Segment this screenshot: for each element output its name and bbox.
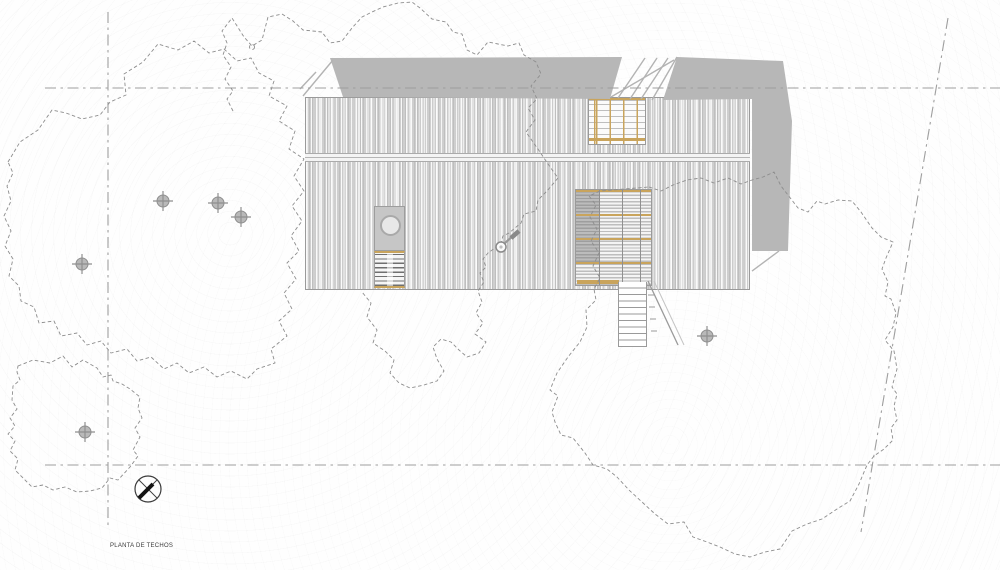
- tree-trunk-marker: [208, 193, 228, 213]
- canopy-knot: [250, 45, 255, 50]
- stair-rail: [648, 281, 684, 345]
- round-vent: [380, 215, 401, 236]
- exterior-stair: [618, 282, 647, 347]
- tree-canopy-outline-bottom-left: [8, 356, 142, 492]
- tree-trunk-marker: [231, 207, 251, 227]
- tree-trunk-marker: [697, 326, 717, 346]
- chimney: [374, 206, 405, 251]
- roof-shadow-top: [330, 57, 622, 99]
- skylight-grid: [588, 97, 646, 145]
- main-roof: [305, 97, 750, 290]
- property-line-slanted: [861, 18, 948, 532]
- drawing-title: PLANTA DE TECHOS: [110, 543, 173, 549]
- tree-trunk-marker: [153, 191, 173, 211]
- north-arrow-icon: [135, 476, 161, 502]
- tree-trunk-marker: [72, 254, 92, 274]
- louver-wood-edge: [577, 280, 619, 284]
- louver-shadow-band: [576, 190, 600, 263]
- tree-trunk-marker: [75, 422, 95, 442]
- roof-plan-drawing: PLANTA DE TECHOS: [0, 0, 1000, 570]
- louver-roof-section: [575, 189, 652, 286]
- tree-canopy-outline-left: [4, 41, 304, 379]
- roof-louver-opening: [374, 251, 405, 288]
- louver-gap: [387, 253, 393, 286]
- roof-seam: [305, 153, 750, 162]
